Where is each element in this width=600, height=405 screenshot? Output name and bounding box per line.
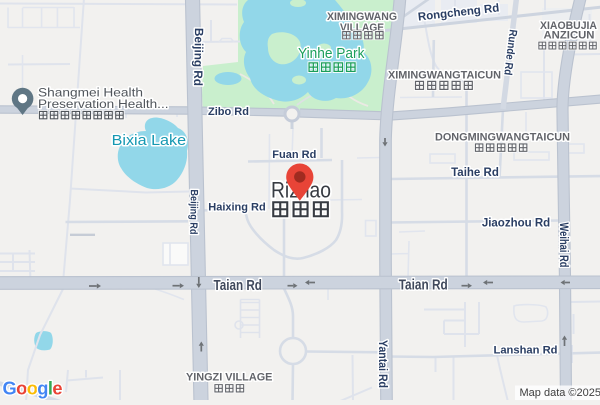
svg-text:Beijing Rd: Beijing Rd — [187, 189, 200, 234]
svg-text:ANZICUN: ANZICUN — [544, 30, 595, 42]
svg-text:Zibo Rd: Zibo Rd — [208, 106, 249, 118]
svg-text:YINGZI VILLAGE: YINGZI VILLAGE — [186, 372, 273, 384]
svg-text:Beijing Rd: Beijing Rd — [191, 28, 206, 86]
svg-text:Taian Rd: Taian Rd — [399, 277, 448, 294]
svg-text:Map data ©2025: Map data ©2025 — [520, 387, 600, 399]
svg-text:Taian Rd: Taian Rd — [213, 277, 262, 294]
svg-text:Taihe Rd: Taihe Rd — [451, 167, 499, 179]
svg-text:XIMINGWANGTAICUN: XIMINGWANGTAICUN — [388, 69, 501, 81]
svg-text:Lanshan Rd: Lanshan Rd — [493, 345, 557, 357]
svg-text:Preservation Health...: Preservation Health... — [38, 97, 169, 111]
svg-text:DONGMINGWANGTAICUN: DONGMINGWANGTAICUN — [435, 132, 570, 144]
svg-text:Haixing Rd: Haixing Rd — [208, 201, 265, 213]
svg-text:Yantai Rd: Yantai Rd — [376, 340, 388, 388]
svg-text:Jiaozhou Rd: Jiaozhou Rd — [482, 217, 550, 229]
svg-text:Google: Google — [3, 378, 63, 399]
svg-text:Bixia Lake: Bixia Lake — [112, 133, 187, 149]
svg-text:Weihai Rd: Weihai Rd — [557, 223, 571, 268]
svg-text:Fuan Rd: Fuan Rd — [272, 149, 316, 161]
svg-text:Yinhe Park: Yinhe Park — [298, 45, 365, 62]
